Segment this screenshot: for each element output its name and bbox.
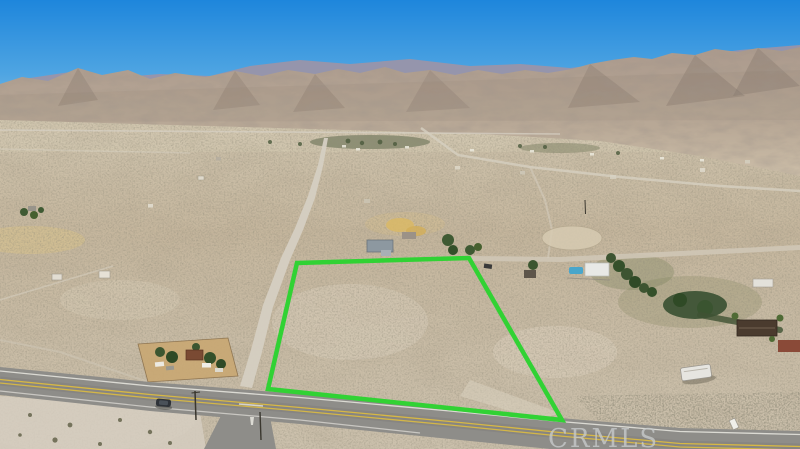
white-roof-house	[585, 263, 609, 276]
red-roof-building	[778, 340, 800, 352]
outbuilding	[381, 250, 391, 256]
parked-car	[166, 366, 174, 371]
ranch-house	[186, 350, 203, 360]
arena	[542, 226, 602, 250]
swimming-pool	[569, 267, 583, 274]
palm-tree	[777, 315, 784, 322]
dark-structure	[524, 270, 536, 278]
barn	[402, 232, 416, 239]
aerial-photo-canvas: CRMLS	[0, 0, 800, 449]
palm-tree	[769, 336, 775, 342]
parked-car	[215, 368, 223, 372]
fenced-lot	[138, 338, 238, 382]
crmls-watermark: CRMLS	[548, 424, 659, 449]
parked-car	[202, 363, 211, 368]
tree-cluster	[663, 291, 727, 319]
aerial-photo: CRMLS	[0, 0, 800, 449]
palm-tree	[732, 313, 739, 320]
white-trailer	[753, 279, 773, 287]
parked-car	[155, 361, 164, 366]
